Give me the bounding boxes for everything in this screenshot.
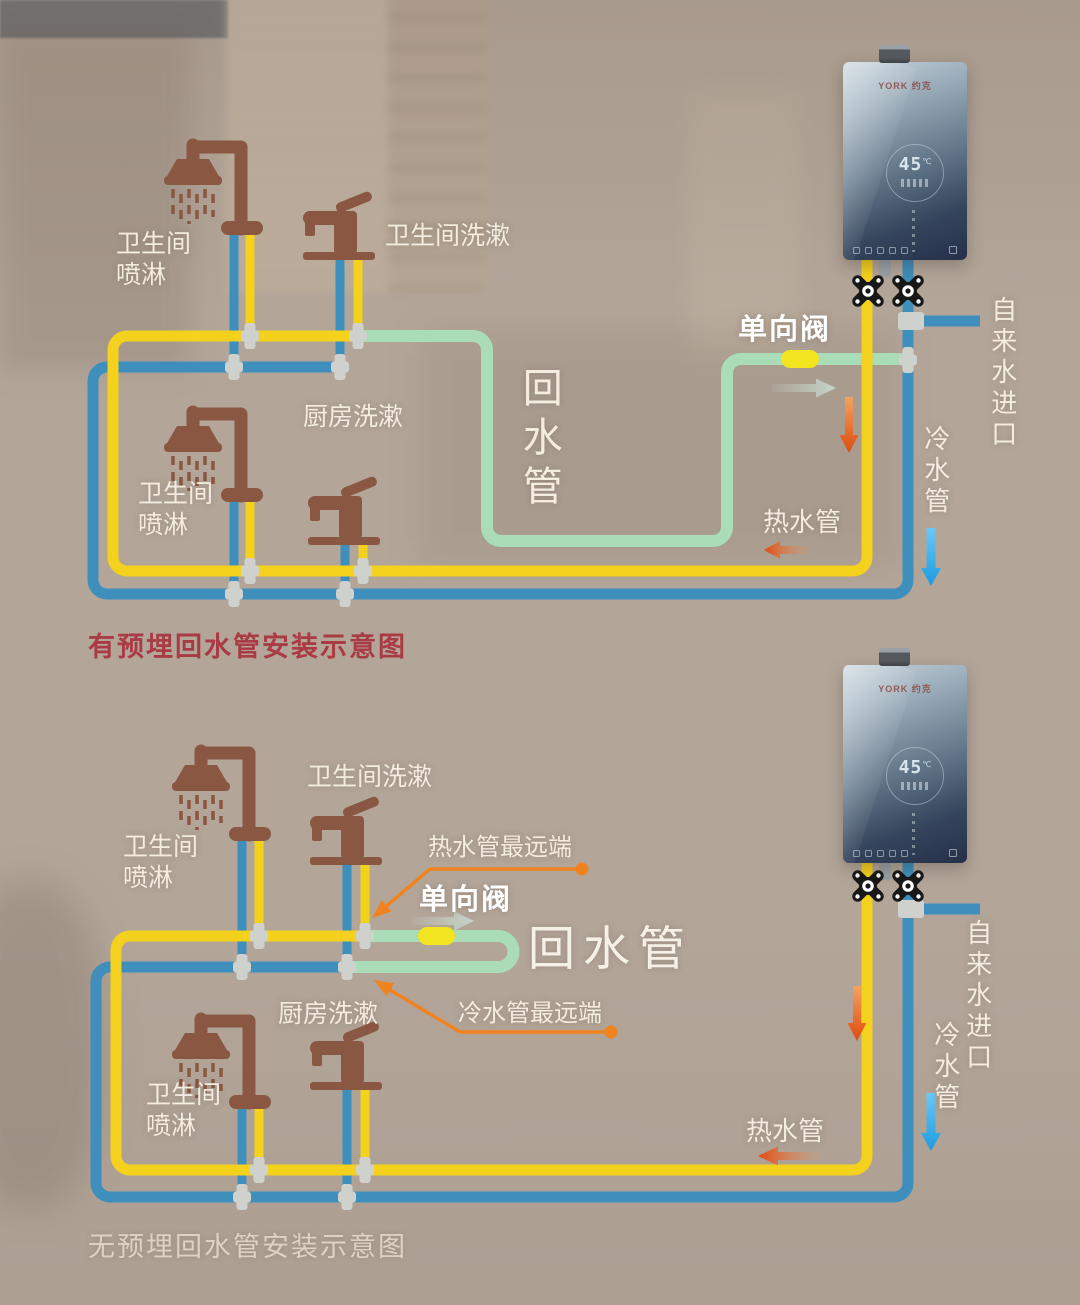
tee-fitting: [250, 1157, 268, 1183]
hot-flow-arrow-left: [758, 1147, 822, 1166]
caption-with-return-pipe: 有预埋回水管安装示意图: [88, 625, 407, 664]
tee-fitting: [349, 323, 367, 349]
cold-flow-arrow-down: [921, 528, 941, 586]
tee-fitting: [233, 1184, 251, 1210]
heater-display: 45℃: [886, 747, 944, 805]
control-buttons: [853, 247, 908, 254]
label-kitchen-sink: 厨房洗漱: [303, 402, 403, 433]
tee-fitting: [331, 354, 349, 380]
faucet-icon: [308, 475, 380, 545]
heater-brand: YORK 约克: [843, 79, 967, 92]
flue-pipe-icon: [879, 648, 910, 666]
heater-display: 45℃: [886, 144, 944, 202]
display-segments: [901, 782, 929, 790]
power-button-icon: [949, 849, 957, 857]
display-segments: [901, 179, 929, 187]
label-bathroom-shower: 卫生间 喷淋: [116, 229, 191, 290]
label-bathroom-sink: 卫生间洗漱: [385, 221, 510, 252]
label-return-pipe: 回水管: [514, 367, 563, 514]
label-cold-pipe: 冷水管: [919, 425, 951, 518]
tee-fitting: [338, 954, 356, 980]
label-check-valve: 单向阀: [738, 313, 831, 348]
label-check-valve: 单向阀: [419, 883, 512, 918]
tee-fitting: [338, 1184, 356, 1210]
faucet-icon: [310, 795, 382, 865]
caption-without-return-pipe: 无预埋回水管安装示意图: [88, 1225, 407, 1264]
drain-stub: [879, 260, 891, 277]
temperature-value: 45: [899, 154, 923, 175]
faucet-icon: [303, 190, 375, 260]
hot-flow-arrow-down: [840, 397, 859, 453]
pipe-fitting: [898, 312, 924, 330]
installation-poster: YORK 约克 45℃ YORK 约克 45℃ 卫生间 喷淋 卫生间洗漱 厨房洗…: [0, 0, 1080, 1305]
label-return-pipe: 回水管: [528, 920, 693, 977]
heater-brand: YORK 约克: [843, 682, 967, 695]
display-strip: [912, 813, 915, 855]
power-button-icon: [949, 246, 957, 254]
check-valve-icon: [781, 350, 819, 368]
check-valve-icon: [418, 927, 455, 945]
tee-fitting: [356, 1157, 374, 1183]
return-flow-arrow: [772, 379, 836, 398]
tee-fitting: [354, 558, 372, 584]
label-bathroom-sink: 卫生间洗漱: [307, 762, 432, 793]
label-hot-pipe: 热水管: [763, 507, 841, 539]
label-tap-water-inlet: 自来水进口: [961, 919, 993, 1074]
shower-icon: [172, 751, 271, 841]
hot-flow-arrow-left: [764, 541, 810, 559]
tee-fitting: [241, 323, 259, 349]
label-hot-pipe: 热水管: [746, 1116, 824, 1148]
tee-fitting: [225, 354, 243, 380]
label-tap-water-inlet: 自来水进口: [986, 296, 1018, 451]
label-hot-far-end: 热水管最远端: [428, 833, 572, 862]
water-heater: YORK 约克 45℃: [843, 665, 967, 863]
tee-fitting: [356, 923, 374, 949]
tee-fitting: [250, 923, 268, 949]
temperature-value: 45: [899, 757, 923, 778]
faucet-icon: [310, 1020, 382, 1090]
flue-pipe-icon: [879, 45, 910, 63]
tee-fitting: [336, 581, 354, 607]
tee-fitting: [241, 558, 259, 584]
label-kitchen-sink: 厨房洗漱: [278, 999, 378, 1030]
pipe-fitting: [898, 900, 924, 918]
display-strip: [912, 210, 915, 252]
control-buttons: [853, 850, 908, 857]
tee-fitting: [225, 581, 243, 607]
label-bathroom-shower: 卫生间 喷淋: [123, 832, 198, 893]
label-cold-pipe: 冷水管: [929, 1021, 961, 1114]
tee-fitting: [233, 954, 251, 980]
label-bathroom-shower: 卫生间 喷淋: [146, 1080, 221, 1141]
water-heater: YORK 约克 45℃: [843, 62, 967, 260]
shower-icon: [164, 145, 263, 235]
label-bathroom-shower: 卫生间 喷淋: [138, 479, 213, 540]
tee-fitting: [899, 347, 917, 373]
label-cold-far-end: 冷水管最远端: [458, 999, 602, 1028]
